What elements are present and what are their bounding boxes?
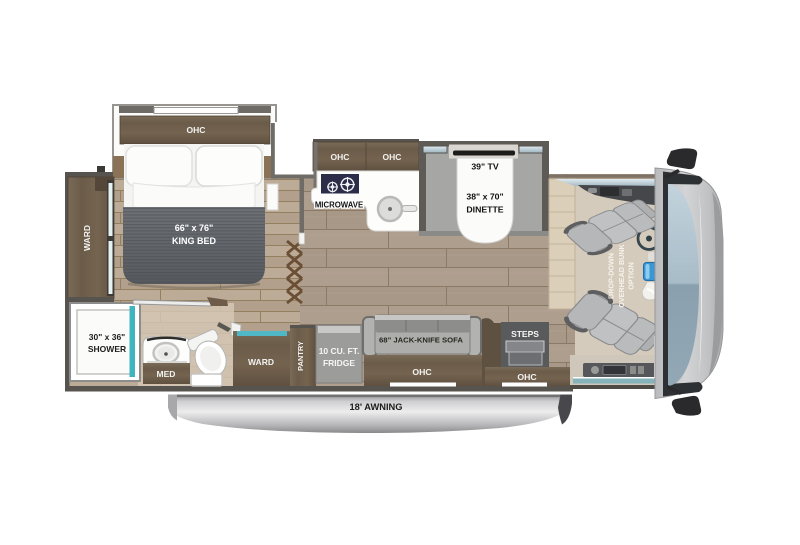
svg-text:OHC: OHC <box>412 367 432 377</box>
svg-text:18' AWNING: 18' AWNING <box>349 402 402 412</box>
svg-text:MED: MED <box>157 369 176 379</box>
svg-text:68" JACK-KNIFE SOFA: 68" JACK-KNIFE SOFA <box>379 336 463 345</box>
svg-text:30" x 36": 30" x 36" <box>89 332 125 342</box>
svg-text:OHC: OHC <box>517 372 537 382</box>
svg-text:66" x 76": 66" x 76" <box>175 223 214 233</box>
svg-text:MICROWAVE: MICROWAVE <box>315 201 363 210</box>
svg-text:OHC: OHC <box>383 152 402 162</box>
svg-text:FRIDGE: FRIDGE <box>323 358 355 368</box>
svg-text:OHC: OHC <box>331 152 350 162</box>
svg-text:PANTRY: PANTRY <box>296 341 305 371</box>
svg-text:WARD: WARD <box>248 357 274 367</box>
svg-text:KING BED: KING BED <box>172 236 217 246</box>
svg-text:OPTION: OPTION <box>627 262 636 290</box>
svg-text:DROP-DOWN: DROP-DOWN <box>607 253 616 299</box>
svg-text:DINETTE: DINETTE <box>466 205 503 215</box>
svg-text:STEPS: STEPS <box>511 329 539 339</box>
svg-text:10 CU. FT.: 10 CU. FT. <box>319 346 360 356</box>
svg-text:38" x 70": 38" x 70" <box>466 192 503 202</box>
svg-text:39" TV: 39" TV <box>471 162 499 172</box>
svg-text:OHC: OHC <box>187 125 206 135</box>
svg-text:SHOWER: SHOWER <box>88 344 126 354</box>
svg-text:OVERHEAD BUNK: OVERHEAD BUNK <box>617 243 626 307</box>
svg-text:WARD: WARD <box>82 225 92 251</box>
